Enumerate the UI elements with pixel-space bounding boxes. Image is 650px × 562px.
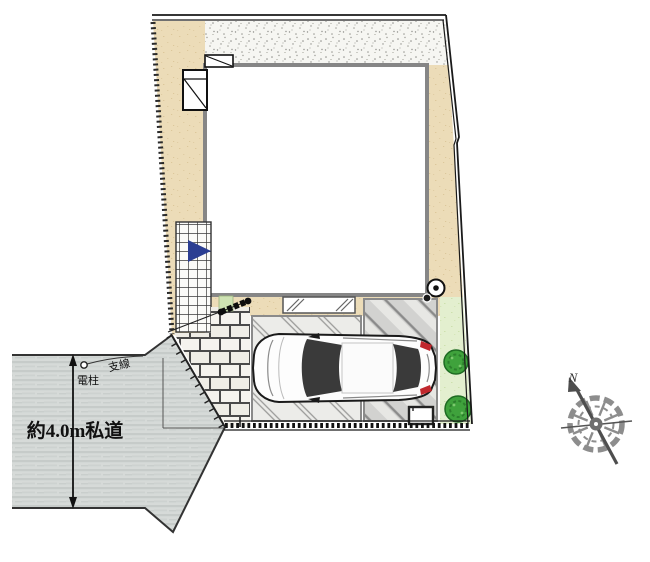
east-beige-strip: [427, 65, 463, 297]
utility-pole-label: 電柱: [77, 373, 99, 387]
compass-rose-icon: N: [561, 370, 632, 464]
car-windshield: [302, 339, 342, 397]
site-plan-drawing: 約4.0m私道 電柱 支線: [0, 0, 650, 562]
site-plan-canvas: 約4.0m私道 電柱 支線: [0, 0, 650, 562]
porch-step: [283, 297, 355, 313]
north-gravel-strip: [205, 21, 449, 65]
entrance-steps-tiles: [176, 222, 211, 332]
car-topview: [253, 333, 436, 403]
plot-area: [152, 15, 472, 430]
car-roof: [342, 343, 393, 393]
road-width-label: 約4.0m私道: [27, 419, 124, 442]
road-north-edge: [12, 335, 172, 355]
building-footprint: [205, 65, 427, 295]
bay-window-symbol-left: [183, 70, 207, 110]
compass-north-label: N: [568, 370, 579, 385]
bay-window-symbol-top: [205, 55, 233, 67]
utility-pole-road-icon: [81, 362, 87, 368]
car-rear-window: [393, 344, 421, 392]
